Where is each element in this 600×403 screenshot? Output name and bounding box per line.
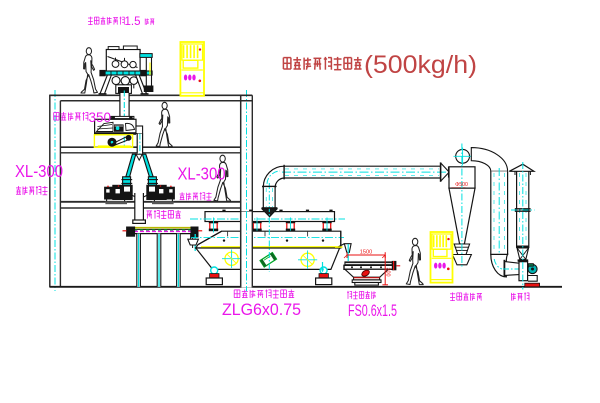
svg-text:XL-300: XL-300 <box>178 164 226 184</box>
svg-text:ZLG6x0.75: ZLG6x0.75 <box>222 301 301 319</box>
svg-text:FS0.6x1.5: FS0.6x1.5 <box>348 302 397 320</box>
svg-text:XL-300: XL-300 <box>15 161 63 181</box>
svg-text:Φ500: Φ500 <box>455 182 468 188</box>
svg-text:(500kg/h): (500kg/h) <box>364 51 477 79</box>
svg-text:350: 350 <box>89 110 112 125</box>
svg-text:1500: 1500 <box>360 250 372 256</box>
svg-text:300: 300 <box>385 268 391 277</box>
svg-text:1.5: 1.5 <box>125 16 141 28</box>
